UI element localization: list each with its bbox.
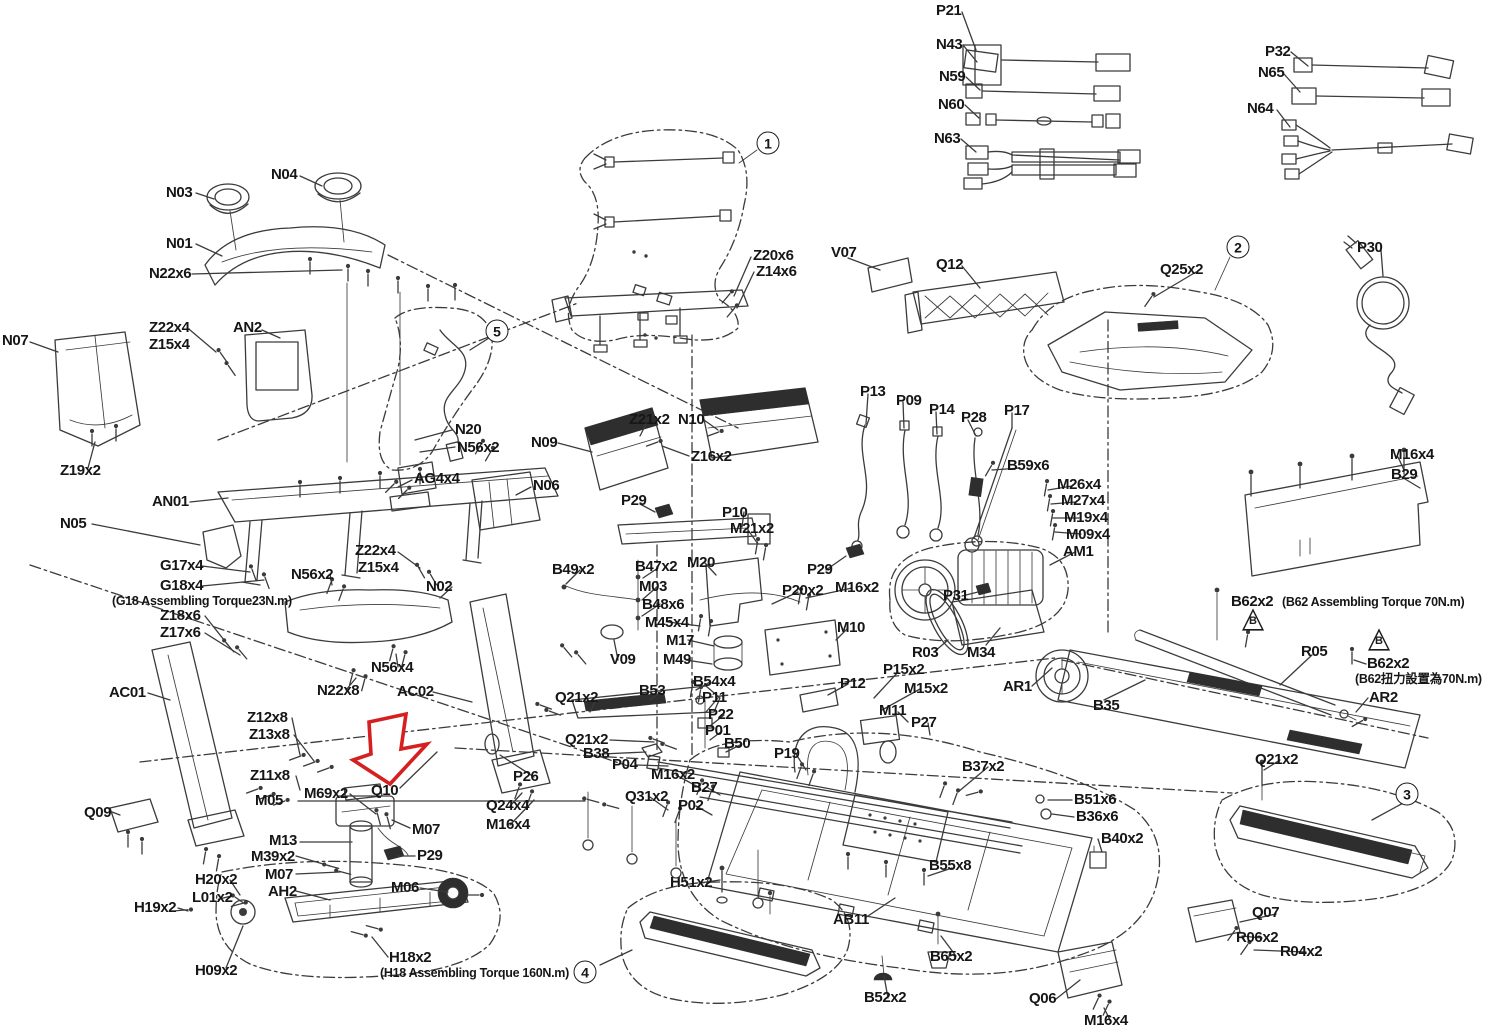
part-label-b62x2-51: B62x2 [1367,656,1409,671]
part-label-p10-32: P10 [722,505,748,520]
part-label-z14x6-19: Z14x6 [756,264,797,279]
part-label-n65-6: N65 [1258,65,1284,80]
part-label-ac01-67: AC01 [109,685,146,700]
part-label-q25x2-22: Q25x2 [1160,262,1203,277]
part-label-b54x4-111: B54x4 [693,674,735,689]
part-label-q21x2-140: Q21x2 [1255,752,1298,767]
part-label-m10-80: M10 [837,620,865,635]
part-label-z22x4-13: Z22x4 [149,320,190,335]
part-label-m13-98: M13 [269,833,297,848]
part-label-m26x4-41: M26x4 [1057,477,1101,492]
part-label-z20x6-18: Z20x6 [753,248,794,263]
part-label-z15x4-63: Z15x4 [358,560,399,575]
part-label-n56x2-24: N56x2 [457,440,499,455]
part-label-n06-26: N06 [533,478,559,493]
exploded-parts-diagram: { "colors": {"line": "#3b3b3b", "backgro… [0,0,1500,1034]
part-label-ac02-68: AC02 [397,684,434,699]
part-label-h19x2-106: H19x2 [134,900,176,915]
part-label-p29-31: P29 [621,493,647,508]
part-label-m15x2-88: M15x2 [904,681,948,696]
part-label-m20-34: M20 [687,555,715,570]
part-label-r04x2-143: R04x2 [1280,944,1322,959]
part-label-p19-126: P19 [774,746,800,761]
part-label-r06x2-142: R06x2 [1236,930,1278,945]
part-label-n02-64: N02 [426,579,452,594]
part-label-m69x2-95: M69x2 [304,786,348,801]
part-label-m39x2-99: M39x2 [251,849,295,864]
part-label-z13x8-92: Z13x8 [249,727,290,742]
part-label-m21x2-33: M21x2 [730,521,774,536]
part-label-an2-15: AN2 [233,320,262,335]
labels-layer: P21N43N59N60N63P32N65N64P30N03N04N01N22x… [0,0,1500,1034]
part-label-b37x2-127: B37x2 [962,759,1004,774]
part-label-p11-112: P11 [702,690,727,705]
part-label-m19x4-43: M19x4 [1064,510,1108,525]
part-label-b36x6-129: B36x6 [1076,809,1118,824]
part-label-b59x6-40: B59x6 [1007,458,1049,473]
part-label-n10-29: N10 [678,412,704,427]
part-label-q21x2-109: Q21x2 [555,690,598,705]
part-label-p30-8: P30 [1357,240,1383,255]
part-label-n22x8-66: N22x8 [317,683,359,698]
part-label-b40x2-130: B40x2 [1101,831,1143,846]
part-label-n09-27: N09 [531,435,557,450]
triangle-letter: B [1375,627,1383,655]
part-label-n60-3: N60 [938,97,964,112]
triangle-letter: B [1249,607,1257,635]
part-label-b52x2-137: B52x2 [864,990,906,1005]
part-label-m16x2-79: M16x2 [835,580,879,595]
part-label--b62-assembling-torque-70n-m--49: (B62 Assembling Torque 70N.m) [1282,596,1464,609]
part-label-m11-89: M11 [879,703,906,718]
part-label-n04-10: N04 [271,167,297,182]
part-label-m17-74: M17 [666,633,694,648]
part-label-b55x8-131: B55x8 [929,858,971,873]
part-label-n56x2-61: N56x2 [291,567,333,582]
part-label-m45x4-73: M45x4 [645,615,689,630]
part-label-p31-81: P31 [943,588,969,603]
part-label-m16x4-46: M16x4 [1390,447,1434,462]
part-label-m34-83: M34 [967,645,995,660]
part-label--b62-70n-m--52: (B62扭力設置為70N.m) [1355,673,1482,686]
part-label-z17x6-60: Z17x6 [160,625,201,640]
part-label-p26-123: P26 [513,769,539,784]
part-label-am1-45: AM1 [1063,544,1093,559]
part-label-n05-54: N05 [60,516,86,531]
part-label-m05-94: M05 [255,793,283,808]
part-label-n59-2: N59 [939,69,965,84]
part-label-p14-37: P14 [929,402,955,417]
part-label-p12-86: P12 [840,676,866,691]
part-label-m06-103: M06 [391,880,419,895]
part-label-h51x2-133: H51x2 [670,875,712,890]
part-label-z22x4-62: Z22x4 [355,543,396,558]
part-label-b38-117: B38 [583,746,609,761]
part-label-b47x2-70: B47x2 [635,559,677,574]
part-label-n64-7: N64 [1247,101,1273,116]
assembly-callout-1: 1 [757,132,780,155]
part-label-p32-5: P32 [1265,44,1291,59]
part-label-ah2-101: AH2 [268,884,297,899]
part-label-g17x4-56: G17x4 [160,558,203,573]
part-label-an01-55: AN01 [152,494,189,509]
part-label-z19x2-17: Z19x2 [60,463,101,478]
part-label-h18x2-134: H18x2 [389,950,431,965]
part-label-p20x2-78: P20x2 [782,583,823,598]
part-label-p17-39: P17 [1004,403,1030,418]
part-label-m16x2-119: M16x2 [651,767,695,782]
part-label-b49x2-69: B49x2 [552,562,594,577]
part-label-b65x2-136: B65x2 [930,949,972,964]
part-label-p21-0: P21 [936,3,962,18]
part-label-ar2-53: AR2 [1369,690,1398,705]
part-label-p29-77: P29 [807,562,833,577]
part-label-z15x4-14: Z15x4 [149,337,190,352]
part-label-z11x8-93: Z11x8 [250,768,290,783]
part-label-p02-122: P02 [678,798,704,813]
part-label-ag4x4-25: AG4x4 [414,471,460,486]
part-label-p27-90: P27 [911,715,937,730]
part-label--h18-assembling-torque-160n-m--135: (H18 Assembling Torque 160N.m) [380,967,569,980]
part-label-m16x4-139: M16x4 [1084,1013,1128,1028]
part-label-m07-100: M07 [265,867,293,882]
part-label--g18-assembling-torque23n-m--58: (G18 Assembling Torque23N.m) [112,595,292,608]
part-label-p28-38: P28 [961,410,987,425]
part-label-n43-1: N43 [936,37,962,52]
part-label-m27x4-42: M27x4 [1061,493,1105,508]
part-label-q12-21: Q12 [936,257,963,272]
part-label-p15x2-87: P15x2 [883,662,924,677]
part-label-ar1-84: AR1 [1003,679,1032,694]
part-label-n01-11: N01 [166,236,192,251]
part-label-z21x2-28: Z21x2 [629,412,670,427]
assembly-callout-4: 4 [574,961,597,984]
part-label-b35-85: B35 [1093,698,1119,713]
part-label-p29-102: P29 [417,848,443,863]
warning-triangle-1: △B [1363,624,1395,652]
assembly-callout-3: 3 [1396,783,1419,806]
part-label-p13-35: P13 [860,384,886,399]
part-label-b48x6-72: B48x6 [642,597,684,612]
warning-triangle-0: △B [1237,604,1269,632]
part-label-m03-71: M03 [639,579,667,594]
part-label-n20-23: N20 [455,422,481,437]
part-label-n03-9: N03 [166,185,192,200]
part-label-p09-36: P09 [896,393,922,408]
part-label-ab11-132: AB11 [833,912,869,927]
part-label-q24x4-124: Q24x4 [486,798,529,813]
part-label-h09x2-107: H09x2 [195,963,237,978]
part-label-n56x4-65: N56x4 [371,660,413,675]
part-label-m09x4-44: M09x4 [1066,527,1110,542]
part-label-q10-96: Q10 [371,783,398,798]
part-label-n22x6-12: N22x6 [149,266,191,281]
part-label-p22-113: P22 [708,707,734,722]
assembly-callout-5: 5 [486,320,509,343]
part-label-l01x2-105: L01x2 [192,890,233,905]
part-label-z16x2-30: Z16x2 [691,449,732,464]
part-label-n63-4: N63 [934,131,960,146]
part-label-m49-75: M49 [663,652,691,667]
part-label-b51x6-128: B51x6 [1074,792,1116,807]
part-label-h20x2-104: H20x2 [195,872,237,887]
part-label-b29-47: B29 [1391,467,1417,482]
part-label-b50-115: B50 [724,736,750,751]
part-label-q06-138: Q06 [1029,991,1056,1006]
part-label-p04-118: P04 [612,757,638,772]
part-label-q07-141: Q07 [1252,905,1279,920]
part-label-q31x2-121: Q31x2 [625,789,668,804]
part-label-v09-76: V09 [610,652,636,667]
part-label-r05-50: R05 [1301,644,1327,659]
part-label-v07-20: V07 [831,245,857,260]
part-label-z12x8-91: Z12x8 [247,710,288,725]
part-label-b27-120: B27 [691,780,717,795]
part-label-n07-16: N07 [2,333,28,348]
part-label-m16x4-125: M16x4 [486,817,530,832]
part-label-z18x6-59: Z18x6 [160,608,201,623]
part-label-q09-108: Q09 [84,805,111,820]
part-label-b53-110: B53 [639,683,665,698]
assembly-callout-2: 2 [1227,236,1250,259]
part-label-m07-97: M07 [412,822,440,837]
part-label-r03-82: R03 [912,645,938,660]
part-label-g18x4-57: G18x4 [160,578,203,593]
